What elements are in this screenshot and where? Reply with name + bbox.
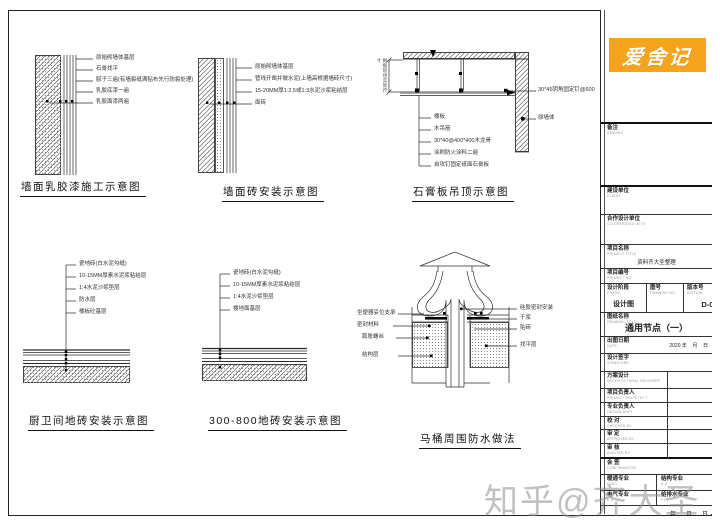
diagram-title-ceiling: 石膏板吊顶示意图: [412, 184, 514, 202]
diagram-label: 1:4水泥沙浆垫层: [79, 285, 120, 292]
diagram-label: 1:4水泥沙浆垫层: [233, 294, 274, 301]
field-sublabel: SIGNATURE: [607, 361, 712, 365]
diagram-label: 10-15MM厚素水泥浆粘结层: [79, 273, 146, 280]
field-project-title: 项目名称 PROJECT TITLE 资料齐大圣整理: [601, 244, 712, 268]
diagram-label: 瓷地砖(白水泥勾缝): [233, 270, 281, 277]
field-remark: 备注 REMARK: [601, 122, 712, 185]
diagram-label: 密封材料: [357, 322, 379, 329]
diagram-label: 干浆: [520, 315, 531, 322]
zhihu-watermark: 知乎@齐大圣: [484, 474, 701, 523]
field-sublabel: CLIENT: [607, 194, 712, 198]
diagram-label: 15-20MM厚1:2.5或1:3水泥沙浆粘结层: [255, 88, 348, 95]
field-sublabel: REMARK: [607, 131, 712, 135]
diagram-label: 瓷地砖(白水泥勾缝): [79, 261, 127, 268]
field-sublabel: AUDITED BY: [607, 451, 712, 455]
diagram-label: 原墙体: [538, 115, 555, 122]
diagram-label: 木吊筋: [434, 126, 451, 133]
field-date: 出图日期 DATE 2020 年 月 日: [601, 336, 712, 353]
diagram-label: 贴砖: [520, 325, 531, 332]
diagram-label: 楼板砼基层: [79, 309, 107, 316]
diagram-label: 坐便器妥位支承: [357, 310, 396, 317]
diagram-label: 结构层: [362, 352, 379, 359]
field-project-architect: 项目负责人 PROJECT ARCHITECT: [601, 388, 712, 402]
field-sublabel: ARCHITECTURAL DESIGNER: [607, 379, 712, 383]
column-divider: [667, 403, 668, 416]
diagram-title-wall-paint: 墙面乳胶漆施工示意图: [20, 179, 146, 197]
project-title-value: 资料齐大圣整理: [601, 258, 712, 266]
diagram-label: 管线开凿并做水泥(上墙高根据墙砖尺寸): [255, 76, 352, 83]
d4-slab-stipple: [23, 366, 130, 383]
column-divider: [667, 430, 668, 443]
field-proofread: 校 对 CHECKED BY: [601, 416, 712, 429]
field-edition: 版本号 EDITION 01: [683, 284, 712, 312]
field-signature: 设计签字 SIGNATURE: [601, 353, 712, 371]
diagram-label: 30*40@400*400木龙骨: [434, 138, 491, 145]
diagram-label: 找平层: [520, 342, 537, 349]
field-coop: 合作设计单位 CO-OPERATED WITH: [601, 214, 712, 244]
diagram-title-bath-floor: 厨卫间地砖安装示意图: [28, 413, 154, 431]
field-sublabel: PROJECT TITLE: [607, 252, 712, 256]
d3-ceiling-hatch: [403, 52, 515, 59]
column-divider: [667, 417, 668, 429]
field-phase: 设计阶段 PHASE 设计图: [601, 284, 646, 312]
d3-wall-hatch: [515, 52, 529, 152]
field-client: 建设单位 CLIENT: [601, 185, 712, 214]
diagram-label: 面砖: [255, 100, 266, 107]
field-sublabel: CO-OPERATED WITH: [607, 222, 712, 226]
diagram-label: 10-15MM厚素水泥浆粘结层: [233, 282, 300, 289]
field-drawing-title: 图纸名称 DRAWING TITLE 通用节点（一）: [601, 312, 712, 336]
diagram-label: 30*45阴角固定钉@600: [538, 87, 595, 94]
brand-logo-text: 爱舍记: [621, 41, 693, 70]
column-divider: [667, 389, 668, 402]
d2-wall-hatch: [198, 58, 215, 173]
diagram-label: 乳胶底漆一遍: [96, 88, 129, 95]
field-sublabel: DESIGN DEPT: [607, 410, 712, 414]
diagram-title-wall-tile: 墙面砖安装示意图: [222, 184, 324, 202]
dimension-text: 根据现场实际尺寸: [376, 58, 388, 96]
d5-slab-stipple: [202, 364, 307, 381]
field-phase-row: 设计阶段 PHASE 设计图 图号 DRAWING NO D-01 版本号 ED…: [601, 283, 712, 312]
d6-left-mortar: [412, 322, 448, 368]
field-sublabel: CONFIRMATION: [607, 466, 712, 470]
field-sublabel: APPROVED BY: [607, 437, 712, 441]
diagram-label: 石膏找平: [96, 66, 118, 73]
diagram-label: 膨胀螺丝: [362, 334, 384, 341]
d1-wall-stipple: [35, 55, 61, 175]
diagram-label: 乳胶面漆两遍: [96, 99, 129, 106]
diagram-label: 楼板: [434, 114, 445, 121]
diagram-label: 涂刷防火涂料二遍: [434, 150, 478, 157]
diagram-label: 硅胶密封安装: [520, 305, 553, 312]
drawing-title-value: 通用节点（一）: [601, 321, 712, 334]
drawing-sheet: 原始砌墙体基层 石膏找平 腻子三遍(有墙裂缝满贴布先行防裂处理) 乳胶底漆一遍 …: [0, 0, 720, 525]
diagram-label: 楼地面基层: [233, 306, 261, 313]
column-divider: [667, 444, 668, 457]
phase-value: 设计图: [601, 299, 646, 309]
field-discipline-lead: 专业负责人 DESIGN DEPT: [601, 402, 712, 416]
diagram-title-toilet: 马桶周围防水做法: [419, 431, 521, 449]
field-drawing-no: 图号 DRAWING NO D-01: [646, 284, 683, 312]
title-block: 爱舍记 备注 REMARK 建设单位 CLIENT 合作设计单位 CO-OPER…: [600, 10, 712, 514]
diagram-title-floor-tile: 300-800地砖安装示意图: [208, 413, 347, 431]
field-sublabel: PROJECT NO: [607, 276, 712, 280]
diagram-label: 自攻钉固定纸面石膏板: [434, 162, 489, 169]
field-project-no: 项目编号 PROJECT NO: [601, 268, 712, 283]
diagram-label: 原始砌墙体基层: [255, 64, 294, 71]
diagram-label: 防水层: [79, 297, 96, 304]
diagram-label: 腻子三遍(有墙裂缝满贴布先行防裂处理): [96, 77, 193, 84]
field-audited: 审 核 AUDITED BY: [601, 443, 712, 457]
field-countersign: 会 签 CONFIRMATION: [601, 457, 712, 474]
diagram-label: 原始砌墙体基层: [96, 55, 135, 62]
title-block-logo-area: 爱舍记: [601, 10, 712, 122]
field-sublabel: PROJECT ARCHITECT: [607, 396, 712, 400]
field-approved: 审 定 APPROVED BY: [601, 429, 712, 443]
field-sublabel: DRAWING NO: [650, 291, 683, 295]
d2-mortar-stipple: [215, 58, 224, 173]
field-sublabel: CHECKED BY: [607, 424, 712, 428]
field-sublabel: EDITION: [687, 291, 712, 295]
field-scheme-designer: 方案设计 ARCHITECTURAL DESIGNER: [601, 371, 712, 388]
date-value: 2020 年 月 日: [669, 342, 708, 349]
d6-right-mortar: [470, 322, 509, 368]
field-sublabel: PHASE: [607, 291, 646, 295]
column-divider: [667, 372, 668, 388]
brand-logo: 爱舍记: [609, 38, 706, 72]
